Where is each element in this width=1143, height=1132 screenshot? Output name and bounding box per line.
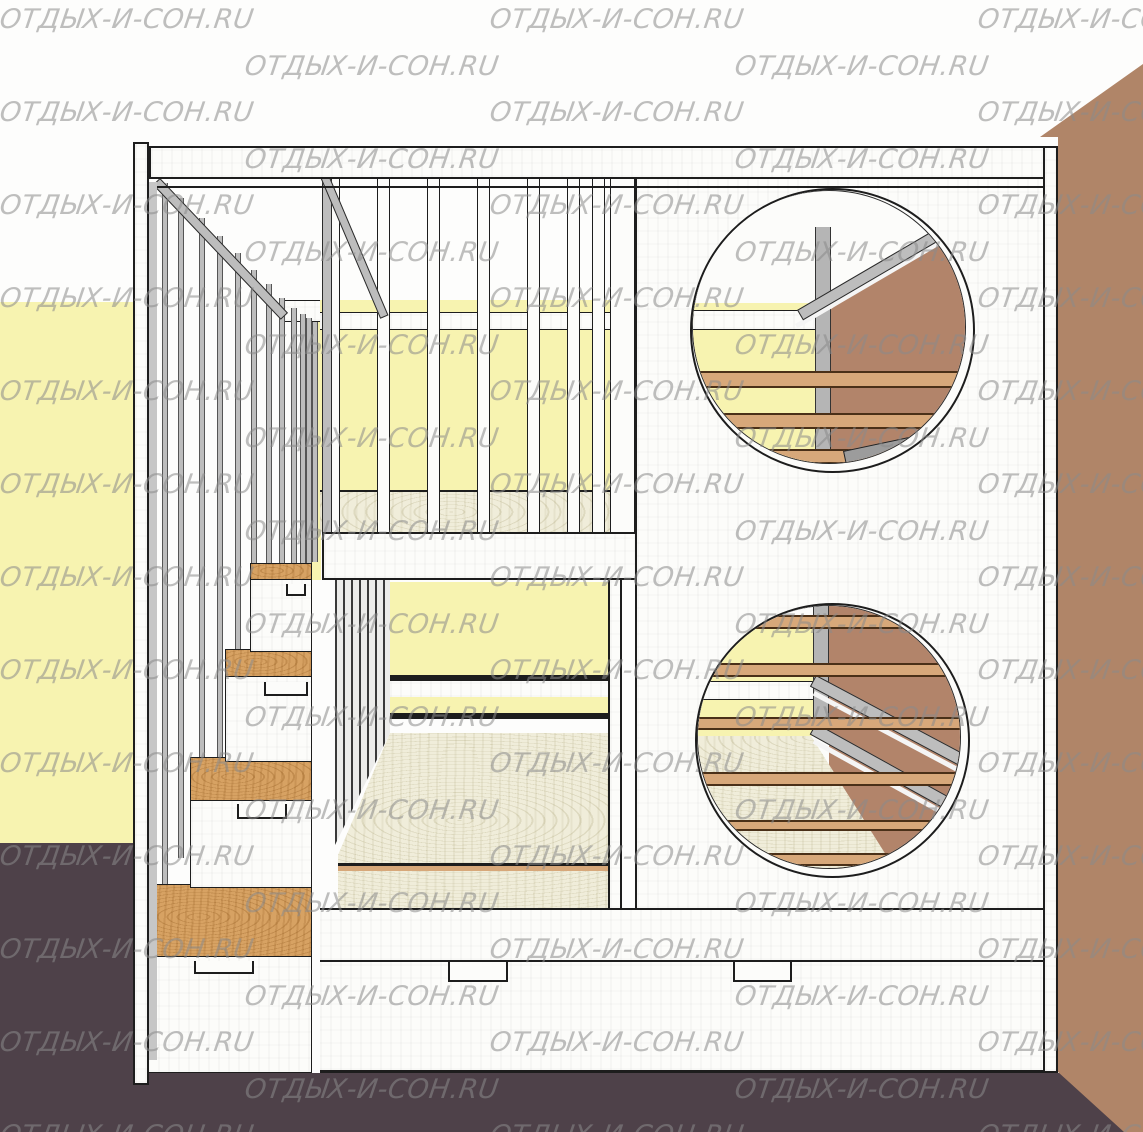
floor xyxy=(0,1073,1143,1132)
watermark-text: ОТДЫХ-И-СОН.RU xyxy=(733,51,991,82)
drawer-handle-notch xyxy=(237,804,287,819)
guardrail-slat xyxy=(592,179,605,532)
lower-bunk-right-post xyxy=(608,580,622,908)
drawer-handle-notch xyxy=(733,962,792,982)
stair-step-1-tread xyxy=(137,884,312,957)
stair-baluster xyxy=(312,322,318,562)
mattress-front-trim xyxy=(338,866,608,871)
stair-step-3-tread xyxy=(225,649,312,677)
lower-side-rail xyxy=(390,681,608,697)
watermark-text: ОТДЫХ-И-СОН.RU xyxy=(0,190,256,221)
porthole-rail xyxy=(698,663,960,677)
watermark-text: ОТДЫХ-И-СОН.RU xyxy=(976,4,1143,35)
porthole-rail xyxy=(698,717,960,730)
guardrail-slat xyxy=(567,179,580,532)
watermark-text: ОТДЫХ-И-СОН.RU xyxy=(488,4,746,35)
porthole-back-rail xyxy=(698,681,813,700)
stair-baluster xyxy=(199,218,205,800)
watermark-text: ОТДЫХ-И-СОН.RU xyxy=(488,97,746,128)
wall-behind-lower-bunk xyxy=(390,582,608,675)
watermark-text: ОТДЫХ-И-СОН.RU xyxy=(0,97,256,128)
watermark-text: ОТДЫХ-И-СОН.RU xyxy=(243,51,501,82)
under-bed-drawer-band xyxy=(320,962,1043,1073)
porthole-window-upper xyxy=(690,188,975,473)
drawer-handle-notch xyxy=(448,962,508,982)
stair-baluster xyxy=(178,198,184,858)
stair-baluster xyxy=(291,308,297,582)
scene-bunk-bed-render: ОТДЫХ-И-СОН.RUОТДЫХ-И-СОН.RUОТДЫХ-И-СОН.… xyxy=(0,0,1143,1132)
watermark-text: ОТДЫХ-И-СОН.RU xyxy=(0,4,256,35)
porthole-rail xyxy=(698,853,960,866)
guardrail-slat xyxy=(477,179,490,532)
porthole-rail xyxy=(698,820,960,831)
top-rail-edge-line xyxy=(149,186,1043,188)
left-post xyxy=(133,142,149,1085)
stair-step-2-tread xyxy=(190,757,312,801)
guardrail-slat xyxy=(527,179,540,532)
lower-rail-edge xyxy=(390,713,608,719)
stair-baluster xyxy=(279,298,285,606)
wall-left-yellow xyxy=(0,302,133,843)
porthole-rail xyxy=(693,371,965,388)
stair-corner-post-gray xyxy=(322,172,332,560)
drawer-handle-notch xyxy=(264,682,308,696)
drawer-handle-notch xyxy=(286,584,306,596)
porthole-lower-inner xyxy=(697,605,961,869)
wall-strip xyxy=(390,697,608,713)
stair-baluster xyxy=(162,183,168,893)
porthole-window-lower xyxy=(695,603,970,878)
porthole-rail xyxy=(698,615,960,629)
guardrail-slat xyxy=(427,179,440,532)
right-post xyxy=(1043,146,1058,1073)
stair-step-4-tread xyxy=(250,563,312,580)
porthole-upper-inner xyxy=(692,190,966,464)
stair-baluster xyxy=(217,236,223,768)
stair-baluster xyxy=(235,253,241,700)
drawer-handle-notch xyxy=(194,961,254,974)
left-post-shadow xyxy=(149,182,157,1060)
top-beam xyxy=(149,146,1058,179)
guardrail-slat xyxy=(377,179,390,532)
porthole-rail xyxy=(693,449,965,464)
porthole-rail xyxy=(693,413,965,429)
base-fascia xyxy=(320,908,1043,962)
guardrail-corner-post xyxy=(610,179,635,532)
porthole-rail xyxy=(698,772,960,786)
